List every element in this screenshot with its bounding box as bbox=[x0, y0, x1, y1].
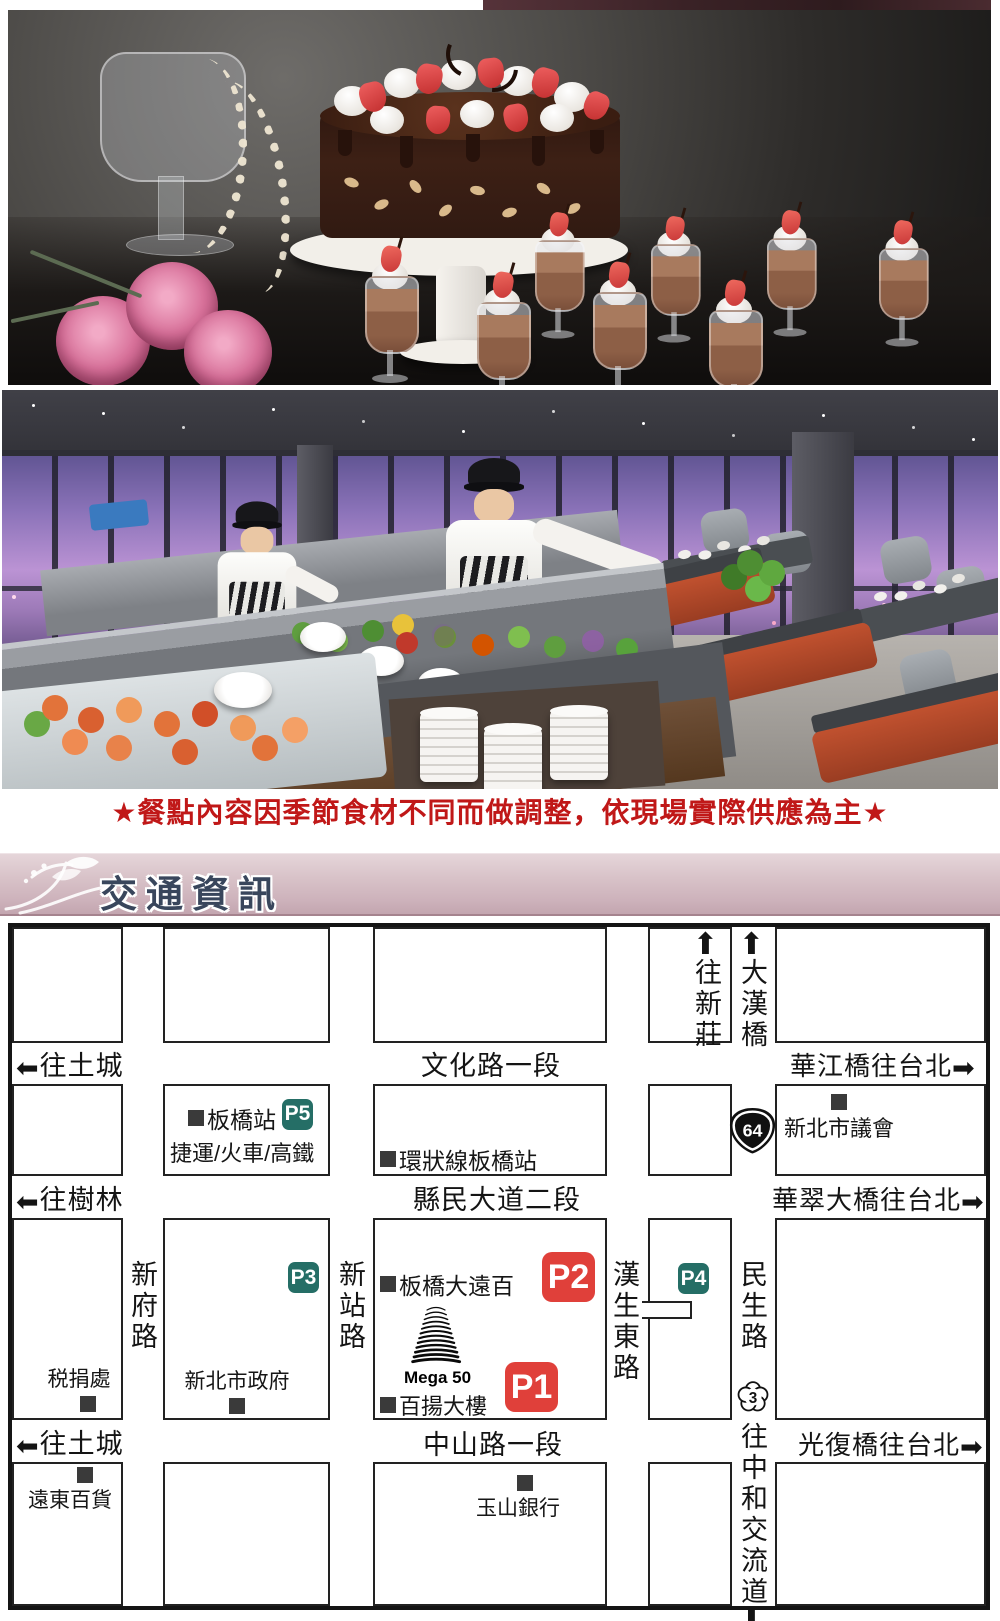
parking-p5-badge: P5 bbox=[282, 1099, 313, 1130]
cream-dollop bbox=[384, 68, 420, 98]
poi-marker bbox=[229, 1398, 245, 1414]
restaurant-buffet-photo bbox=[2, 390, 998, 789]
driveway-notch bbox=[642, 1301, 692, 1319]
poi-marker bbox=[831, 1094, 847, 1110]
map-block bbox=[775, 1462, 986, 1606]
mousse-glass bbox=[472, 294, 532, 385]
chocolate-drip bbox=[590, 130, 604, 154]
plate-stack bbox=[420, 712, 478, 782]
poi-circular-line-station: 環狀線板橋站 bbox=[380, 1142, 537, 1176]
plate-stack bbox=[550, 710, 608, 780]
right-arrow-icon: ➡ bbox=[960, 1432, 984, 1462]
chocolate-drip bbox=[532, 136, 545, 166]
map-block bbox=[775, 1218, 986, 1420]
exit-huacui-bridge: 華翠大橋往台北➡ bbox=[772, 1185, 985, 1218]
mousse-glass bbox=[762, 231, 817, 340]
chocolate-drip bbox=[400, 136, 413, 168]
right-arrow-icon: ➡ bbox=[952, 1053, 976, 1083]
exit-shulin: ⬅往樹林 bbox=[16, 1184, 124, 1218]
map-block bbox=[648, 1084, 732, 1176]
ceiling-lights bbox=[32, 404, 35, 407]
poi-tax-office: 税捐處 bbox=[36, 1363, 122, 1412]
chocolate-drip bbox=[466, 134, 480, 162]
highway-64-badge: 64 bbox=[729, 1107, 776, 1154]
poi-marker bbox=[380, 1397, 396, 1413]
svg-text:64: 64 bbox=[743, 1121, 763, 1141]
left-arrow-icon: ⬅ bbox=[16, 1431, 40, 1461]
exit-tucheng-north: ⬅往土城 bbox=[16, 1050, 124, 1084]
seafood-crabs bbox=[42, 695, 68, 721]
right-arrow-icon: ➡ bbox=[961, 1187, 985, 1217]
parking-p3-badge: P3 bbox=[288, 1262, 319, 1293]
dessert-buffet-photo bbox=[8, 10, 991, 385]
exit-guangfu-bridge: 光復橋往台北➡ bbox=[798, 1430, 984, 1463]
cream-dollop bbox=[540, 104, 574, 132]
map-block bbox=[12, 1084, 123, 1176]
mega50-tower-icon bbox=[410, 1305, 462, 1367]
mousse-glass bbox=[588, 284, 648, 385]
map-block bbox=[12, 927, 123, 1043]
traffic-map: ⬆ 往新莊 ⬆ 大漢橋 ⬅往土城 文化路一段 華江橋往台北➡ 板橋站 P5 捷運… bbox=[8, 923, 990, 1610]
road-xinzhan: 新站路 bbox=[336, 1260, 363, 1353]
poi-esun-bank: 玉山銀行 bbox=[464, 1475, 572, 1522]
chocolate-drip bbox=[338, 130, 352, 156]
poi-marker bbox=[80, 1396, 96, 1412]
poi-baiyang-building: 百揚大樓 bbox=[380, 1389, 487, 1421]
exit-huajiang-bridge: 華江橋往台北➡ bbox=[790, 1051, 976, 1084]
direction-zhonghe-interchange: 往中和交流道 ⬇ bbox=[738, 1422, 765, 1621]
map-block-p4 bbox=[648, 1218, 732, 1420]
poi-marker bbox=[517, 1475, 533, 1491]
poi-marker bbox=[380, 1276, 396, 1292]
poi-fe-department-store: 遠東百貨 bbox=[20, 1467, 120, 1514]
plate-stack bbox=[484, 728, 542, 789]
left-arrow-icon: ⬅ bbox=[16, 1053, 40, 1083]
up-arrow-icon: ⬆ bbox=[693, 932, 718, 958]
direction-xinzhuang: ⬆ 往新莊 bbox=[692, 932, 719, 1051]
parking-p4-badge: P4 bbox=[678, 1263, 709, 1294]
road-xianmin-blvd: 縣民大道二段 bbox=[413, 1184, 581, 1216]
poi-marker bbox=[188, 1110, 204, 1126]
up-arrow-icon: ⬆ bbox=[739, 932, 764, 958]
svg-text:3: 3 bbox=[749, 1390, 758, 1407]
map-block bbox=[775, 927, 986, 1043]
seafood-bowl bbox=[214, 672, 272, 708]
chair bbox=[879, 534, 934, 586]
road-minsheng: 民生路 bbox=[738, 1260, 765, 1353]
mousse-glass bbox=[646, 237, 701, 346]
page: ★餐點內容因季節食材不同而做調整，依現場實際供應為主★ 交通資訊 bbox=[0, 0, 1000, 1621]
mousse-glass bbox=[530, 233, 585, 342]
strawberry bbox=[414, 62, 445, 96]
road-zhongshan: 中山路一段 bbox=[423, 1429, 563, 1461]
mousse-glass bbox=[360, 268, 420, 385]
map-block bbox=[648, 1462, 732, 1606]
cream-dollop bbox=[460, 100, 494, 128]
road-wenhua: 文化路一段 bbox=[421, 1050, 561, 1082]
map-block bbox=[373, 927, 607, 1043]
left-arrow-icon: ⬅ bbox=[16, 1187, 40, 1217]
road-hansheng-east: 漢生東路 bbox=[610, 1260, 637, 1384]
poi-banqiao-station: 板橋站 P5 bbox=[188, 1101, 313, 1135]
greens-garnish bbox=[737, 550, 763, 576]
highway-3-badge: 3 bbox=[735, 1379, 771, 1415]
mega50-label: Mega 50 bbox=[400, 1368, 475, 1388]
poi-far-eastern-mall: 板橋大遠百 bbox=[380, 1267, 514, 1301]
mousse-glass bbox=[874, 241, 929, 350]
poi-marker bbox=[77, 1467, 93, 1483]
map-block bbox=[163, 927, 330, 1043]
menu-notice: ★餐點內容因季節食材不同而做調整，依現場實際供應為主★ bbox=[0, 791, 1000, 831]
mousse-glass bbox=[704, 302, 764, 385]
map-block bbox=[163, 1462, 330, 1606]
poi-banqiao-station-sub: 捷運/火車/高鐵 bbox=[170, 1136, 314, 1168]
down-arrow-icon: ⬇ bbox=[739, 1608, 764, 1621]
parking-p1-badge: P1 bbox=[505, 1362, 558, 1412]
road-xinfu: 新府路 bbox=[128, 1260, 155, 1353]
rose bbox=[184, 310, 272, 385]
section-title: 交通資訊 bbox=[100, 864, 284, 918]
poi-city-council: 新北市議會 bbox=[778, 1094, 900, 1143]
poi-city-hall: 新北市政府 bbox=[182, 1365, 292, 1414]
section-banner: 交通資訊 bbox=[0, 853, 1000, 916]
exit-tucheng-south: ⬅往土城 bbox=[16, 1428, 124, 1462]
mortar-bowl bbox=[300, 622, 346, 652]
direction-dahan-bridge: ⬆ 大漢橋 bbox=[738, 932, 765, 1051]
cropped-image-strip bbox=[483, 0, 991, 10]
parking-p2-badge: P2 bbox=[542, 1252, 595, 1302]
poi-marker bbox=[380, 1151, 396, 1167]
